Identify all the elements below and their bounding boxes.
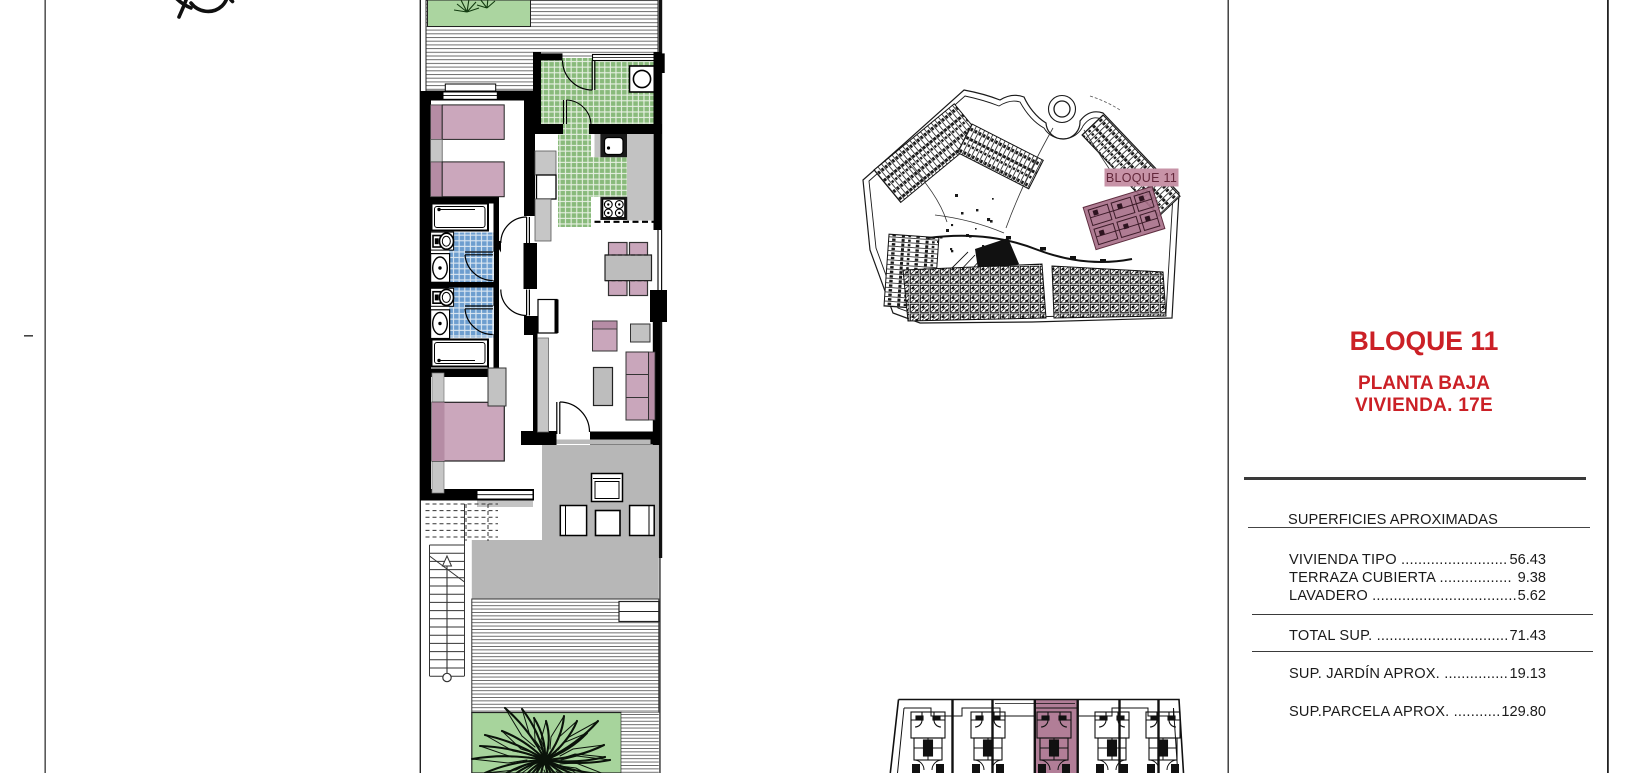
svg-text:BLOQUE 11: BLOQUE 11 — [1106, 171, 1177, 185]
